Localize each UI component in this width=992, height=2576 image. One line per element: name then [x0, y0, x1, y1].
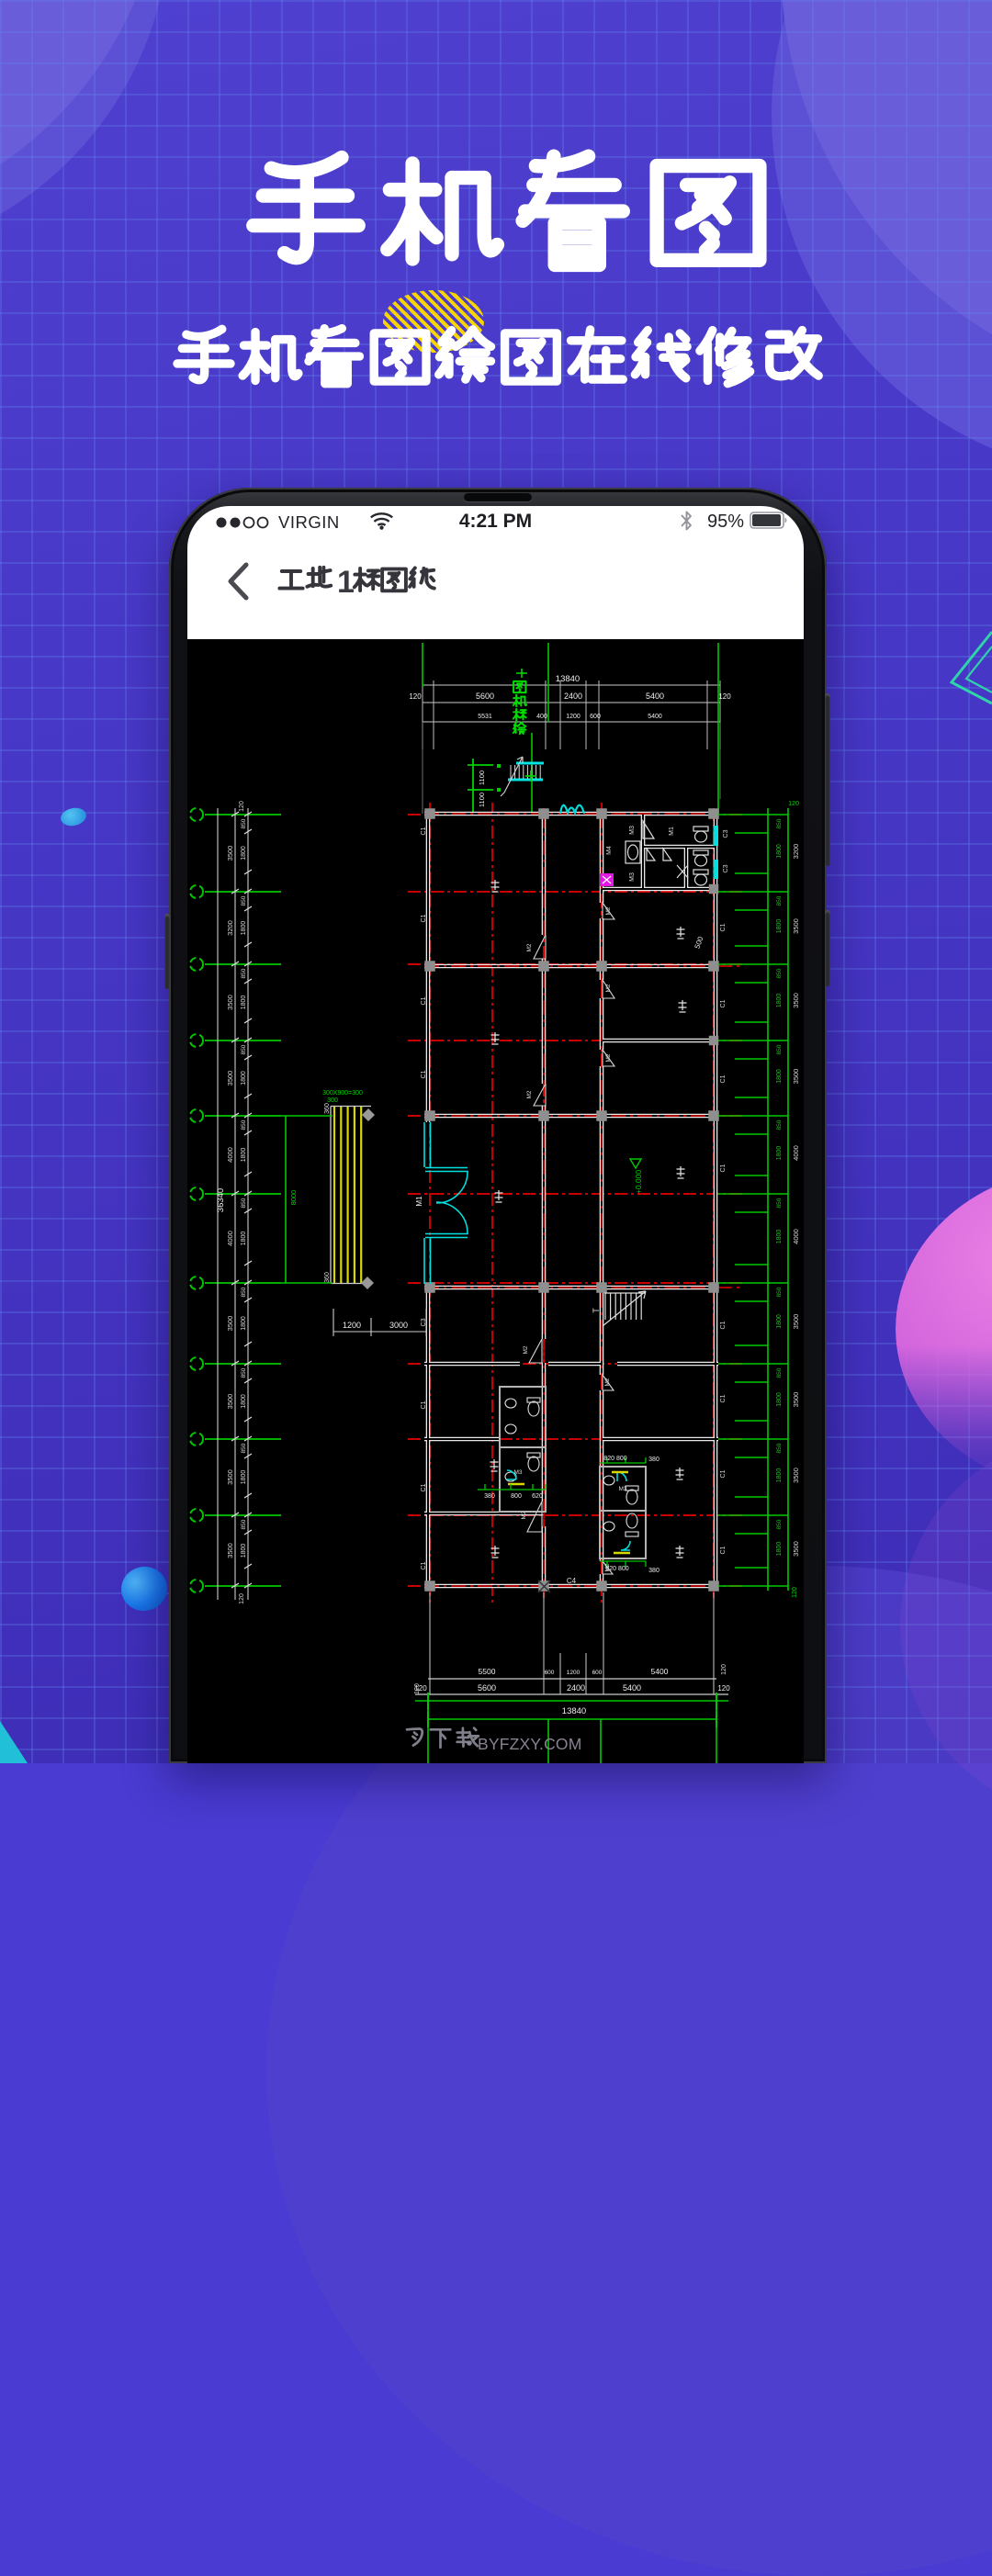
svg-text:380: 380 — [648, 1568, 659, 1574]
svg-text:5500: 5500 — [479, 1667, 496, 1676]
svg-text:3200: 3200 — [226, 920, 234, 936]
svg-text:850: 850 — [776, 1287, 783, 1297]
svg-text:C1: C1 — [720, 923, 727, 931]
svg-text:360: 360 — [324, 1272, 331, 1283]
svg-text:120: 120 — [239, 801, 245, 812]
svg-text:C1: C1 — [720, 1394, 727, 1402]
svg-text:1800: 1800 — [241, 1394, 247, 1409]
svg-text:120: 120 — [721, 1664, 727, 1675]
svg-text:C1: C1 — [720, 1469, 727, 1478]
svg-text:120: 120 — [239, 1593, 245, 1604]
svg-text:850: 850 — [776, 1044, 783, 1054]
svg-text:1800: 1800 — [776, 844, 783, 859]
svg-text:120: 120 — [788, 801, 799, 807]
svg-text:C1: C1 — [421, 1483, 427, 1491]
svg-text:120: 120 — [409, 692, 422, 701]
svg-text:3500: 3500 — [226, 1469, 234, 1485]
svg-text:5400: 5400 — [646, 692, 664, 701]
svg-text:1800: 1800 — [776, 1069, 783, 1084]
svg-text:C1: C1 — [720, 1074, 727, 1083]
svg-text:620: 620 — [532, 1493, 543, 1500]
svg-text:C1: C1 — [421, 914, 427, 922]
svg-text:2400: 2400 — [564, 692, 582, 701]
svg-text:820 800: 820 800 — [605, 1566, 628, 1572]
svg-text:3500: 3500 — [226, 1316, 234, 1332]
svg-text:850: 850 — [241, 1198, 247, 1208]
svg-text:850: 850 — [241, 1443, 247, 1453]
svg-text:M2: M2 — [526, 1090, 533, 1098]
svg-text:380: 380 — [484, 1493, 495, 1500]
svg-text:M1: M1 — [669, 827, 675, 836]
svg-text:850: 850 — [776, 1519, 783, 1529]
svg-text:1800: 1800 — [241, 1148, 247, 1163]
svg-text:36340: 36340 — [216, 1188, 226, 1212]
svg-text:C1: C1 — [720, 1546, 727, 1554]
svg-text:3500: 3500 — [792, 1541, 800, 1557]
svg-text:600: 600 — [590, 714, 601, 720]
svg-text:400: 400 — [536, 714, 547, 720]
svg-text:4000: 4000 — [792, 1229, 800, 1244]
svg-text:BYFZXY.COM: BYFZXY.COM — [478, 1735, 582, 1753]
svg-text:13840: 13840 — [556, 674, 580, 684]
svg-text:C4: C4 — [567, 1577, 577, 1585]
svg-text:1800: 1800 — [776, 919, 783, 934]
svg-text:1800: 1800 — [241, 846, 247, 861]
svg-text:C3: C3 — [421, 1318, 427, 1326]
svg-text:M2: M2 — [605, 984, 612, 992]
svg-text:820 800: 820 800 — [603, 1456, 626, 1462]
svg-text:800: 800 — [511, 1493, 522, 1500]
svg-text:4000: 4000 — [226, 1147, 234, 1163]
svg-text:850: 850 — [776, 895, 783, 906]
svg-text:1800: 1800 — [241, 1316, 247, 1331]
svg-text:3000: 3000 — [389, 1321, 408, 1330]
svg-text:M2: M2 — [523, 1345, 529, 1354]
svg-text:1800: 1800 — [241, 996, 247, 1010]
svg-text:3500: 3500 — [226, 1394, 234, 1410]
svg-text:600: 600 — [545, 1670, 555, 1676]
svg-text:3500: 3500 — [792, 993, 800, 1008]
svg-text:4000: 4000 — [792, 1145, 800, 1161]
svg-text:1800: 1800 — [776, 1146, 783, 1161]
svg-text:1800: 1800 — [241, 1232, 247, 1246]
svg-text:C1: C1 — [720, 1164, 727, 1172]
svg-text:120: 120 — [717, 1684, 730, 1693]
svg-text:850: 850 — [776, 1119, 783, 1130]
svg-text:500: 500 — [693, 935, 705, 950]
svg-text:1800: 1800 — [776, 1314, 783, 1329]
svg-text:120: 120 — [718, 692, 731, 701]
svg-text:1200: 1200 — [343, 1321, 361, 1330]
svg-text:M2: M2 — [605, 1053, 612, 1062]
svg-text:850: 850 — [776, 1367, 783, 1378]
svg-text:1800: 1800 — [776, 1468, 783, 1483]
svg-text:3500: 3500 — [792, 1314, 800, 1330]
svg-text:C3: C3 — [723, 829, 729, 838]
svg-text:1100: 1100 — [478, 771, 486, 785]
svg-text:850: 850 — [241, 895, 247, 906]
svg-text:1800: 1800 — [241, 921, 247, 936]
svg-text:M3: M3 — [629, 826, 636, 835]
svg-text:M1: M1 — [415, 1196, 423, 1207]
svg-text:1200: 1200 — [567, 1670, 581, 1676]
svg-text:C1: C1 — [421, 1561, 427, 1569]
svg-text:3500: 3500 — [226, 1071, 234, 1086]
svg-text:1800: 1800 — [241, 1071, 247, 1086]
svg-text:850: 850 — [776, 968, 783, 978]
svg-text:120: 120 — [414, 1683, 421, 1694]
svg-text:850: 850 — [241, 1044, 247, 1054]
svg-text:3500: 3500 — [792, 918, 800, 934]
svg-text:8000: 8000 — [289, 1190, 298, 1206]
svg-text:1: 1 — [337, 565, 355, 600]
svg-text:C3: C3 — [723, 864, 729, 872]
svg-text:120: 120 — [792, 1587, 798, 1598]
svg-text:M2: M2 — [526, 943, 533, 951]
svg-text:M4: M4 — [606, 846, 613, 855]
svg-text:360: 360 — [324, 1103, 331, 1114]
svg-text:850: 850 — [241, 968, 247, 978]
svg-text:1800: 1800 — [241, 1544, 247, 1558]
svg-text:13840: 13840 — [562, 1706, 586, 1716]
svg-text:1200: 1200 — [566, 714, 581, 720]
svg-text:3500: 3500 — [792, 1468, 800, 1483]
svg-text:C1: C1 — [421, 1070, 427, 1078]
svg-text:1100: 1100 — [478, 793, 486, 807]
svg-text:380: 380 — [648, 1457, 659, 1463]
svg-text:1800: 1800 — [776, 1230, 783, 1244]
svg-text:850: 850 — [241, 818, 247, 828]
svg-text:5600: 5600 — [476, 692, 494, 701]
svg-text:850: 850 — [241, 1119, 247, 1130]
svg-text:4000: 4000 — [226, 1231, 234, 1246]
svg-text:1800: 1800 — [776, 994, 783, 1008]
svg-text:3500: 3500 — [792, 1392, 800, 1408]
svg-text:1800: 1800 — [241, 1470, 247, 1485]
svg-text:850: 850 — [241, 1287, 247, 1297]
svg-text:C1: C1 — [421, 996, 427, 1005]
svg-text:850: 850 — [776, 1198, 783, 1208]
svg-text:C1: C1 — [720, 999, 727, 1007]
svg-text:1800: 1800 — [776, 1542, 783, 1557]
svg-text:M3: M3 — [513, 1469, 522, 1476]
svg-text:M3: M3 — [618, 1486, 626, 1492]
svg-text:3500: 3500 — [792, 1069, 800, 1085]
svg-text:M3: M3 — [629, 872, 636, 882]
svg-text:850: 850 — [241, 1519, 247, 1529]
svg-text:3500: 3500 — [226, 1543, 234, 1558]
svg-text:5400: 5400 — [648, 714, 662, 720]
svg-text:2400: 2400 — [567, 1683, 585, 1693]
svg-text:5400: 5400 — [651, 1667, 669, 1676]
svg-text:C1: C1 — [421, 1400, 427, 1409]
svg-text:5400: 5400 — [623, 1683, 641, 1693]
svg-text:850: 850 — [776, 818, 783, 828]
svg-text:850: 850 — [776, 1443, 783, 1453]
svg-text:+0.000: +0.000 — [634, 1170, 643, 1195]
svg-text:300X900=300: 300X900=300 — [322, 1090, 363, 1097]
svg-text:1800: 1800 — [776, 1392, 783, 1407]
svg-text:C1: C1 — [720, 1321, 727, 1329]
svg-text:T: T — [592, 1308, 601, 1313]
svg-text:5531: 5531 — [478, 714, 492, 720]
svg-text:M2: M2 — [605, 906, 612, 915]
svg-text:5600: 5600 — [478, 1683, 496, 1693]
svg-text:3500: 3500 — [226, 846, 234, 861]
svg-text:850: 850 — [241, 1367, 247, 1378]
svg-text:C1: C1 — [421, 827, 427, 835]
svg-text:3200: 3200 — [792, 844, 800, 860]
svg-text:300: 300 — [327, 1097, 338, 1104]
svg-text:3500: 3500 — [226, 995, 234, 1010]
svg-text:M2: M2 — [604, 1378, 611, 1386]
svg-text:600: 600 — [592, 1670, 603, 1676]
